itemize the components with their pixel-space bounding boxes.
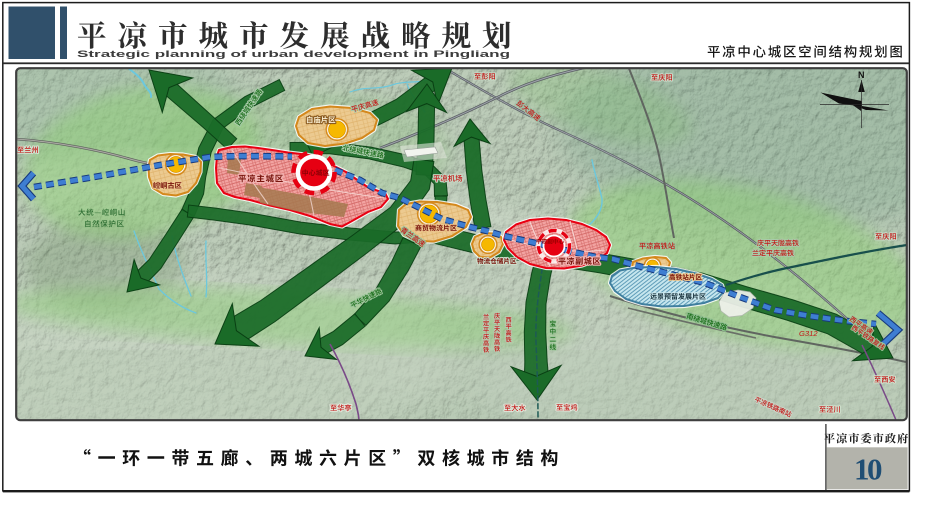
svg-text:G312: G312: [799, 329, 818, 338]
svg-text:N: N: [858, 70, 865, 80]
svg-text:Strategic planning of urban de: Strategic planning of urban development …: [77, 48, 510, 59]
svg-text:10: 10: [854, 452, 882, 487]
